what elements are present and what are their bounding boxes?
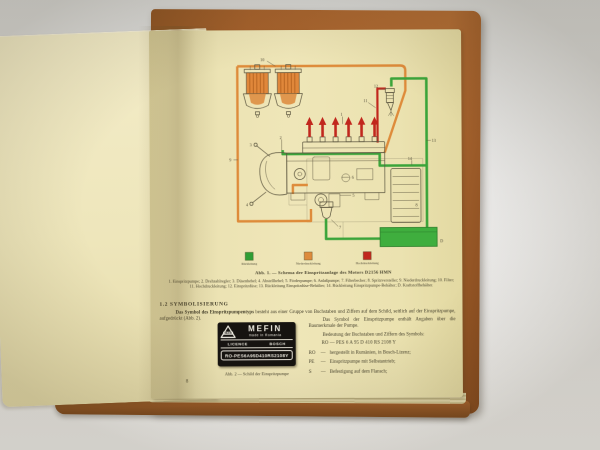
plate-origin-text: made in Romania xyxy=(238,333,293,337)
part-label-6: 6 xyxy=(352,175,354,180)
fuel-filter-left xyxy=(243,65,271,118)
figure1-parts-list: 1. Einspritzpumpe; 2. Drehzahlregler; 3.… xyxy=(167,277,455,290)
definition-text: hergestellt in Rumänien, in Bosch-Lizenz… xyxy=(330,350,411,357)
definition-text: Befestigung auf dem Flansch; xyxy=(330,369,387,376)
mefin-triangle-logo-icon: MEFIN xyxy=(221,325,236,338)
definition-key: S xyxy=(309,370,321,376)
part-label-2: 2 xyxy=(280,135,282,140)
plate-licensor: BOSCH xyxy=(269,342,285,346)
figure1-caption: Abb. 1. — Schema der Einspritzanlage des… xyxy=(191,269,455,275)
book-photo-scene: 10 2 3 4 9 1 11 12 13 14 8 6 5 7 D xyxy=(0,0,600,450)
part-label-4: 4 xyxy=(246,202,249,207)
plate-brand-name: MEFIN xyxy=(238,325,293,333)
paragraph-lead-bold: Das Symbol des Einspritzpumpentyps xyxy=(176,310,254,315)
definition-dash: — xyxy=(321,351,330,357)
definition-row-pe: PE — Einspritzpumpe mit Selbstantrieb; xyxy=(309,360,456,367)
symbol-text-column: Das Symbol der Einspritzpumpe enthält An… xyxy=(309,317,456,376)
symbol-definitions: RO — hergestellt in Rumänien, in Bosch-L… xyxy=(309,350,456,376)
part-label-13: 13 xyxy=(432,138,436,143)
part-label-10: 10 xyxy=(260,57,264,62)
definition-dash: — xyxy=(321,370,330,376)
high-pressure-pipe xyxy=(377,89,386,143)
fuel-system-diagram: 10 2 3 4 9 1 11 12 13 14 8 6 5 7 D xyxy=(224,52,449,265)
definition-key: PE xyxy=(309,360,321,366)
part-label-11: 11 xyxy=(363,98,367,103)
arrow-fittings xyxy=(307,137,377,142)
injector-nozzle xyxy=(385,89,394,117)
injection-arrows xyxy=(306,117,379,142)
definition-row-ro: RO — hergestellt in Rumänien, in Bosch-L… xyxy=(309,350,456,357)
legend-swatch-high-pressure xyxy=(363,252,371,260)
right-page: 10 2 3 4 9 1 11 12 13 14 8 6 5 7 D xyxy=(149,29,463,399)
legend-swatch-return xyxy=(245,252,253,260)
diagram-legend: Rückleitung Niederdruckleitung Hochdruck… xyxy=(241,252,379,266)
fuel-tank xyxy=(380,227,437,246)
symbol-code-line: RO — PES 6 A 95 D 410 RS 2108 Y xyxy=(309,340,456,347)
part-label-8: 8 xyxy=(415,202,417,207)
page-number: 8 xyxy=(186,380,188,385)
arrow-glyphs xyxy=(306,117,379,137)
part-label-D: D xyxy=(440,238,443,243)
mefin-type-plate: MEFIN MEFIN made in Romania LICENCE BOSC… xyxy=(218,322,296,366)
legend-label-high-pressure: Hochdruckleitung xyxy=(356,261,379,265)
definition-text: Einspritzpumpe mit Selbstantrieb; xyxy=(330,360,396,367)
plate-header: MEFIN MEFIN made in Romania xyxy=(221,325,293,341)
definition-key: RO xyxy=(309,351,321,357)
fuel-filters xyxy=(243,65,302,118)
part-label-12: 12 xyxy=(374,84,378,89)
engine-outline xyxy=(289,158,423,239)
legend-label-low-pressure: Niederdruckleitung xyxy=(296,261,321,265)
plate-licence-row: LICENCE BOSCH xyxy=(221,340,293,348)
definition-dash: — xyxy=(321,360,330,366)
plate-type-code: RO-PES6A95D410RS2108Y xyxy=(221,350,293,360)
part-label-5: 5 xyxy=(352,193,354,198)
section-paragraph-3: Bedeutung der Buchstaben und Ziffern des… xyxy=(309,332,456,339)
logo-text: MEFIN xyxy=(225,333,232,335)
page-content: 10 2 3 4 9 1 11 12 13 14 8 6 5 7 D xyxy=(154,29,458,399)
fuel-filter-right xyxy=(274,65,302,118)
legend-swatch-low-pressure xyxy=(304,252,312,260)
figure2-caption: Abb. 2 — Schild der Einspritzpumpe xyxy=(202,371,312,377)
legend-label-return: Rückleitung xyxy=(241,262,257,266)
part-label-1: 1 xyxy=(340,112,342,117)
part-label-3: 3 xyxy=(250,142,252,147)
definition-row-s: S — Befestigung auf dem Flansch; xyxy=(309,369,456,376)
section-heading: 1.2 SYMBOLISIERUNG xyxy=(159,301,228,307)
part-label-7: 7 xyxy=(339,225,341,230)
plate-brand-block: MEFIN made in Romania xyxy=(238,325,293,338)
section-paragraph-2: Das Symbol der Einspritzpumpe enthält An… xyxy=(309,317,456,330)
plate-licence-label: LICENCE xyxy=(228,342,248,346)
part-label-9: 9 xyxy=(229,157,231,162)
